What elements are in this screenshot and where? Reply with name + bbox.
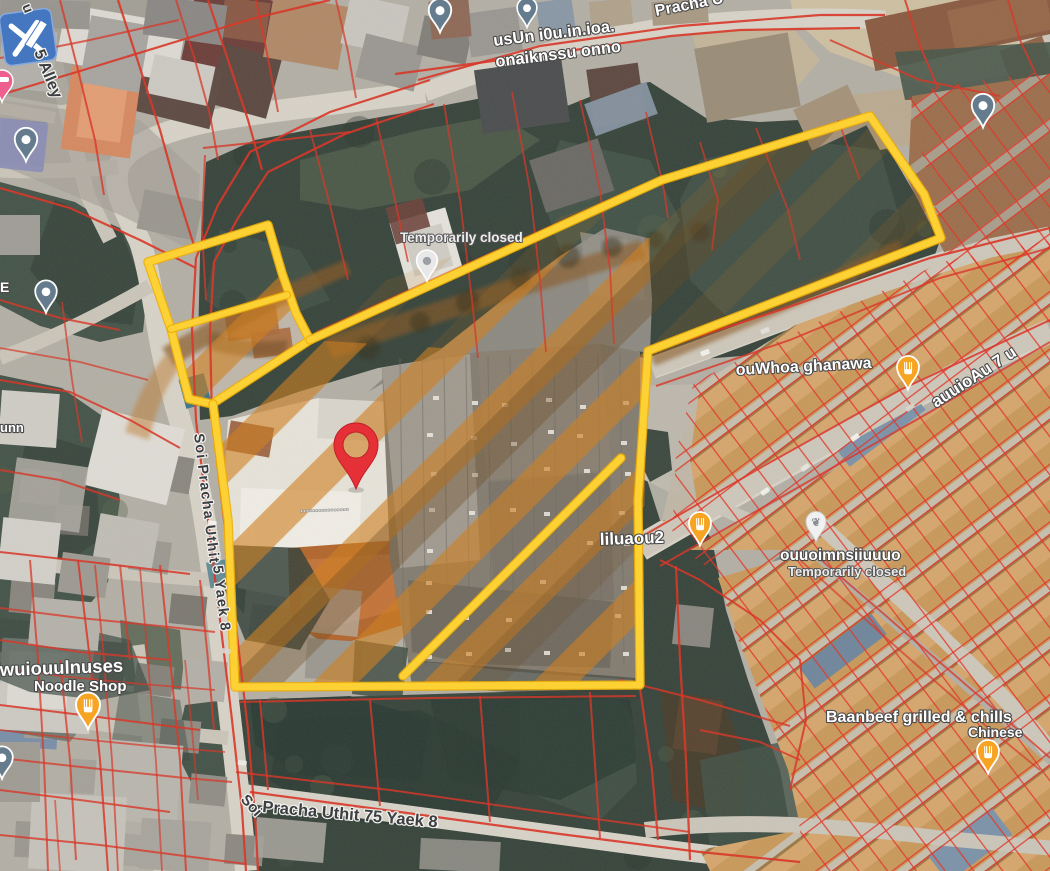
svg-text:liluaou2: liluaou2 (599, 528, 664, 549)
svg-text:Temporarily closed: Temporarily closed (400, 230, 523, 245)
svg-text:unn: unn (0, 420, 24, 435)
svg-text:Noodle Shop: Noodle Shop (34, 678, 127, 695)
svg-text:❦: ❦ (811, 517, 820, 529)
svg-text:wuiouulnuses: wuiouulnuses (0, 655, 123, 680)
svg-text:ouuoimnsiiuuuo: ouuoimnsiiuuuo (780, 547, 901, 564)
svg-text:E: E (0, 279, 9, 295)
svg-text:Temporarily closed: Temporarily closed (788, 564, 906, 579)
svg-text:................: ................ (300, 501, 349, 515)
svg-text:Chinese: Chinese (968, 724, 1023, 740)
